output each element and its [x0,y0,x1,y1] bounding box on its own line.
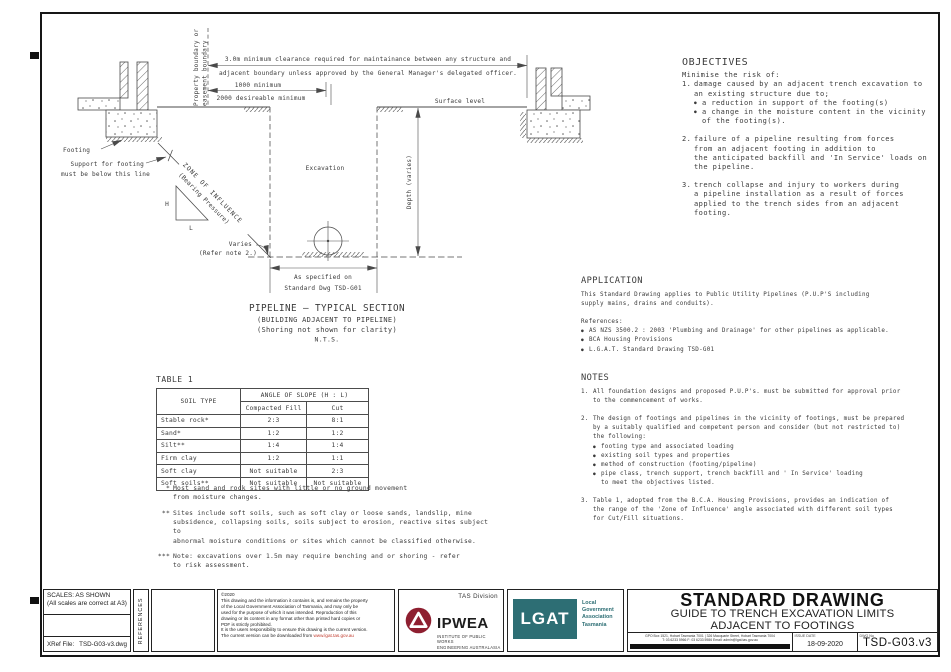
left-wall [120,62,148,110]
drawing-title-line2: ADJACENT TO FOOTINGS [628,621,937,633]
item-text: Table 1, adopted from the B.C.A. Housing… [593,497,893,524]
left-floor-slab [78,98,120,110]
objectives-intro: Minimise the risk of: [682,71,938,80]
left-footing-hatch [106,137,162,142]
footnote: *** Note: excavations over 1.5m may requ… [156,552,496,570]
caption-sub1: (BUILDING ADJACENT TO PIPELINE) [257,316,397,324]
table-row: Silt** 1:4 1:4 [157,440,369,453]
bullet-icon: ● [581,346,589,355]
lgat-word-line: Local [582,600,614,607]
issue-date-label: ISSUE DATE [795,634,816,638]
col-header-angle: ANGLE OF SLOPE (H : L) [241,389,369,402]
soil-cell: Silt** [157,440,241,453]
objective-1-bullets: ● a reduction in support of the footing(… [694,99,938,127]
item-text: trench collapse and injury to workers du… [694,181,904,218]
dwg-number-value: TSD-G03.v3 [858,637,937,649]
boundary-label-line2: easement boundary [202,40,209,106]
issue-date-cell: ISSUE DATE 18-09-2020 [793,633,858,651]
soil-cell: Stable rock* [157,415,241,428]
right-footing-side-hatch [520,112,526,138]
references-list: ● AS NZS 3500.2 : 2003 'Plumbing and Dra… [581,327,937,354]
xref-value: TSD-G03-v3.dwg [79,641,127,648]
width-label-line2: Standard Dwg TSD-G01 [284,285,362,292]
bullet-icon: ● [593,443,601,452]
footnote-marker: * [156,484,173,502]
dwg-number-cell: DWG No TSD-G03.v3 [858,633,937,651]
lgat-wordmark: Local Government Association Tasmania [582,600,614,629]
table-row: Soft clay Not suitable 2:3 [157,465,369,478]
right-wall [536,68,562,110]
references-label-strip: REFERENCES [133,589,149,652]
bullet-text: a change in the moisture content in the … [702,108,926,126]
bullet-icon: ● [694,99,702,108]
references-label: References: [581,318,937,327]
scales-line2: (All scales are correct at A3) [47,600,130,608]
dim-2000-label: 2000 desireable minimum [217,95,306,102]
zone-of-influence-line: ZONE OF INFLUENCE (Bearing Pressure) [151,138,276,265]
lgat-word-line: Government [582,607,614,614]
tas-division-label: TAS Division [458,593,498,600]
fill-cell: 1:4 [241,440,307,453]
clearance-note-line1: 3.0m minimum clearance required for main… [225,56,511,63]
copyright-notice: This drawing and the information it cont… [221,598,391,628]
ipwea-logo-box: TAS Division IPWEA INSTITUTE OF PUBLIC W… [398,589,504,652]
soil-cell: Soft clay [157,465,241,478]
bullet-row: ● footing type and associated loading [593,443,937,452]
scales-box: SCALES: AS SHOWN (All scales are correct… [43,589,131,652]
item-text: failure of a pipeline resulting from for… [694,135,927,172]
cut-cell: 2:3 [307,465,369,478]
depth-label: Depth (varies) [406,155,413,209]
col-header-cut: Cut [307,402,369,415]
footnote: * Most sand and rock sites with little o… [156,484,496,502]
caption-sub2: (Shoring not shown for clarity) [257,326,397,334]
caption-nts: N.T.S. [315,336,340,344]
lgat-logo-icon: LGAT [513,599,577,639]
item-text: damage caused by an adjacent trench exca… [694,80,923,98]
item-number: 1. [581,388,593,406]
bullet-icon: ● [593,461,601,470]
varies-label-line2: (Refer note 2.) [199,250,257,257]
caption-title: PIPELINE — TYPICAL SECTION [249,303,405,314]
item-number: 3. [581,497,593,524]
bullet-text: pipe class, trench support, trench backf… [601,470,863,488]
col-header-soil-type: SOIL TYPE [157,389,241,415]
table-footnotes: * Most sand and rock sites with little o… [156,484,496,577]
objective-item: 2. failure of a pipeline resulting from … [682,135,938,172]
reference-text: L.G.A.T. Standard Drawing TSD-G01 [589,346,714,355]
application-section: APPLICATION This Standard Drawing applie… [581,277,937,355]
address-divider-bar [630,644,790,649]
reference-row: ● BCA Housing Provisions [581,336,937,345]
slope-l-label: L [189,225,193,232]
item-number: 2. [682,135,694,172]
bullet-row: ● method of construction (footing/pipeli… [593,461,937,470]
fill-cell: Not suitable [241,465,307,478]
objectives-heading: OBJECTIVES [682,58,938,67]
table-row: Sand* 1:2 1:2 [157,427,369,440]
bullet-text: a reduction in support of the footing(s) [702,99,889,108]
bullet-icon: ● [593,470,601,488]
lgat-address-cell: GPO Box 1521, Hobart Tasmania 7001 | 326… [628,633,793,651]
drawing-series-title: STANDARD DRAWING [628,591,937,609]
dim-1000-label: 1000 minimum [235,82,282,89]
zone-label-line1: ZONE OF INFLUENCE [181,162,243,225]
note-item: 2. The design of footings and pipelines … [581,415,937,442]
trench-bottom-hatch [302,252,364,257]
bullet-row: ● pipe class, trench support, trench bac… [593,470,937,488]
reference-text: BCA Housing Provisions [589,336,673,345]
excavation-label: Excavation [306,165,345,172]
notes-heading: NOTES [581,374,937,383]
right-footing [527,110,580,138]
bullet-icon: ● [581,336,589,345]
note-2-bullets: ● footing type and associated loading ● … [593,443,937,488]
copyright-box: ©2020 This drawing and the information i… [217,589,395,652]
width-label-line1: As specified on [294,274,352,281]
bullet-row: ● a reduction in support of the footing(… [694,99,938,108]
table-row: Firm clay 1:2 1:1 [157,452,369,465]
references-box [151,589,215,652]
right-footing-hatch [527,138,583,143]
trench-edge-hatch-left [244,108,270,113]
table-1: TABLE 1 SOIL TYPE ANGLE OF SLOPE (H : L)… [156,375,369,491]
footnote-marker: ** [156,509,173,546]
footnote-text: Note: excavations over 1.5m may require … [173,552,460,570]
objective-item: 3. trench collapse and injury to workers… [682,181,938,218]
title-box: STANDARD DRAWING GUIDE TO TRENCH EXCAVAT… [627,589,938,652]
ipwea-name: IPWEA [437,615,489,632]
item-number: 3. [682,181,694,218]
ipwea-logo-icon [405,607,432,639]
ipwea-subtitle-line1: INSTITUTE OF PUBLIC WORKS [437,634,503,645]
lgat-logo-box: LGAT Local Government Association Tasman… [507,589,624,652]
ipwea-subtitle-line2: ENGINEERING AUSTRALASIA [437,645,503,650]
bullet-icon: ● [593,452,601,461]
bullet-row: ● existing soil types and properties [593,452,937,461]
bullet-text: method of construction (footing/pipeline… [601,461,757,470]
fill-cell: 1:2 [241,452,307,465]
lgat-url-link[interactable]: www.lgat.tas.gov.au [313,633,354,638]
bullet-row: ● a change in the moisture content in th… [694,108,938,126]
cut-cell: 1:2 [307,427,369,440]
reference-row: ● AS NZS 3500.2 : 2003 'Plumbing and Dra… [581,327,937,336]
item-text: The design of footings and pipelines in … [593,415,904,442]
address-line2: T: 03 6233 5966 F: 03 6233 5986 Email: a… [630,638,790,642]
notes-section: NOTES 1. All foundation designs and prop… [581,374,937,533]
soil-cell: Sand* [157,427,241,440]
footing-label: Footing [63,147,90,154]
surface-level-label: Surface level [435,98,485,105]
scales-line1: SCALES: AS SHOWN [47,592,130,600]
bullet-text: existing soil types and properties [601,452,730,461]
lgat-word-line: Association [582,614,614,621]
note-item: 1. All foundation designs and proposed P… [581,388,937,406]
drawing-sheet: Property boundary or easement boundary 3… [0,0,951,672]
footnote-text: Most sand and rock sites with little or … [173,484,407,502]
cut-cell: 8:1 [307,415,369,428]
fill-cell: 1:2 [241,427,307,440]
boundary-label-line1: Property boundary or [193,28,200,106]
table-row: Stable rock* 2:3 8:1 [157,415,369,428]
objectives-section: OBJECTIVES Minimise the risk of: 1. dama… [682,58,938,227]
application-heading: APPLICATION [581,277,937,286]
support-leader [146,157,166,163]
cut-cell: 1:1 [307,452,369,465]
cut-cell: 1:4 [307,440,369,453]
objective-item: 1. damage caused by an adjacent trench e… [682,80,938,98]
xref-label: XRef File: [47,641,74,648]
left-footing [106,110,157,137]
clearance-note-line2: adjacent boundary unless approved by the… [219,70,517,77]
references-strip-label: REFERENCES [138,597,144,644]
trench-edge-hatch-right [377,108,403,113]
support-note-line2: must be below this line [61,171,150,178]
note-item: 3. Table 1, adopted from the B.C.A. Hous… [581,497,937,524]
table-title: TABLE 1 [156,375,369,384]
application-body: This Standard Drawing applies to Public … [581,291,937,309]
slope-h-label: H [165,201,169,208]
lgat-acronym: LGAT [520,609,569,629]
bullet-icon: ● [581,327,589,336]
item-number: 2. [581,415,593,442]
fill-cell: 2:3 [241,415,307,428]
bullet-icon: ● [694,108,702,126]
scales-spacer [44,615,130,637]
footnote-marker: *** [156,552,173,570]
diagram-caption: PIPELINE — TYPICAL SECTION (BUILDING ADJ… [249,303,405,344]
support-note-line1: Support for footing [70,161,144,168]
reference-row: ● L.G.A.T. Standard Drawing TSD-G01 [581,346,937,355]
bullet-text: footing type and associated loading [601,443,734,452]
item-number: 1. [682,80,694,98]
issue-date-value: 18-09-2020 [793,641,857,648]
col-header-compacted-fill: Compacted Fill [241,402,307,415]
lgat-word-line: Tasmania [582,622,614,629]
footnote-text: Sites include soft soils, such as soft c… [173,509,496,546]
footnote: ** Sites include soft soils, such as sof… [156,509,496,546]
reference-text: AS NZS 3500.2 : 2003 'Plumbing and Drain… [589,327,889,336]
varies-label-line1: Varies [229,241,252,248]
item-text: All foundation designs and proposed P.U.… [593,388,901,406]
drawing-title-line1: GUIDE TO TRENCH EXCAVATION LIMITS [628,609,937,621]
soil-cell: Firm clay [157,452,241,465]
right-floor-slab [562,96,590,110]
